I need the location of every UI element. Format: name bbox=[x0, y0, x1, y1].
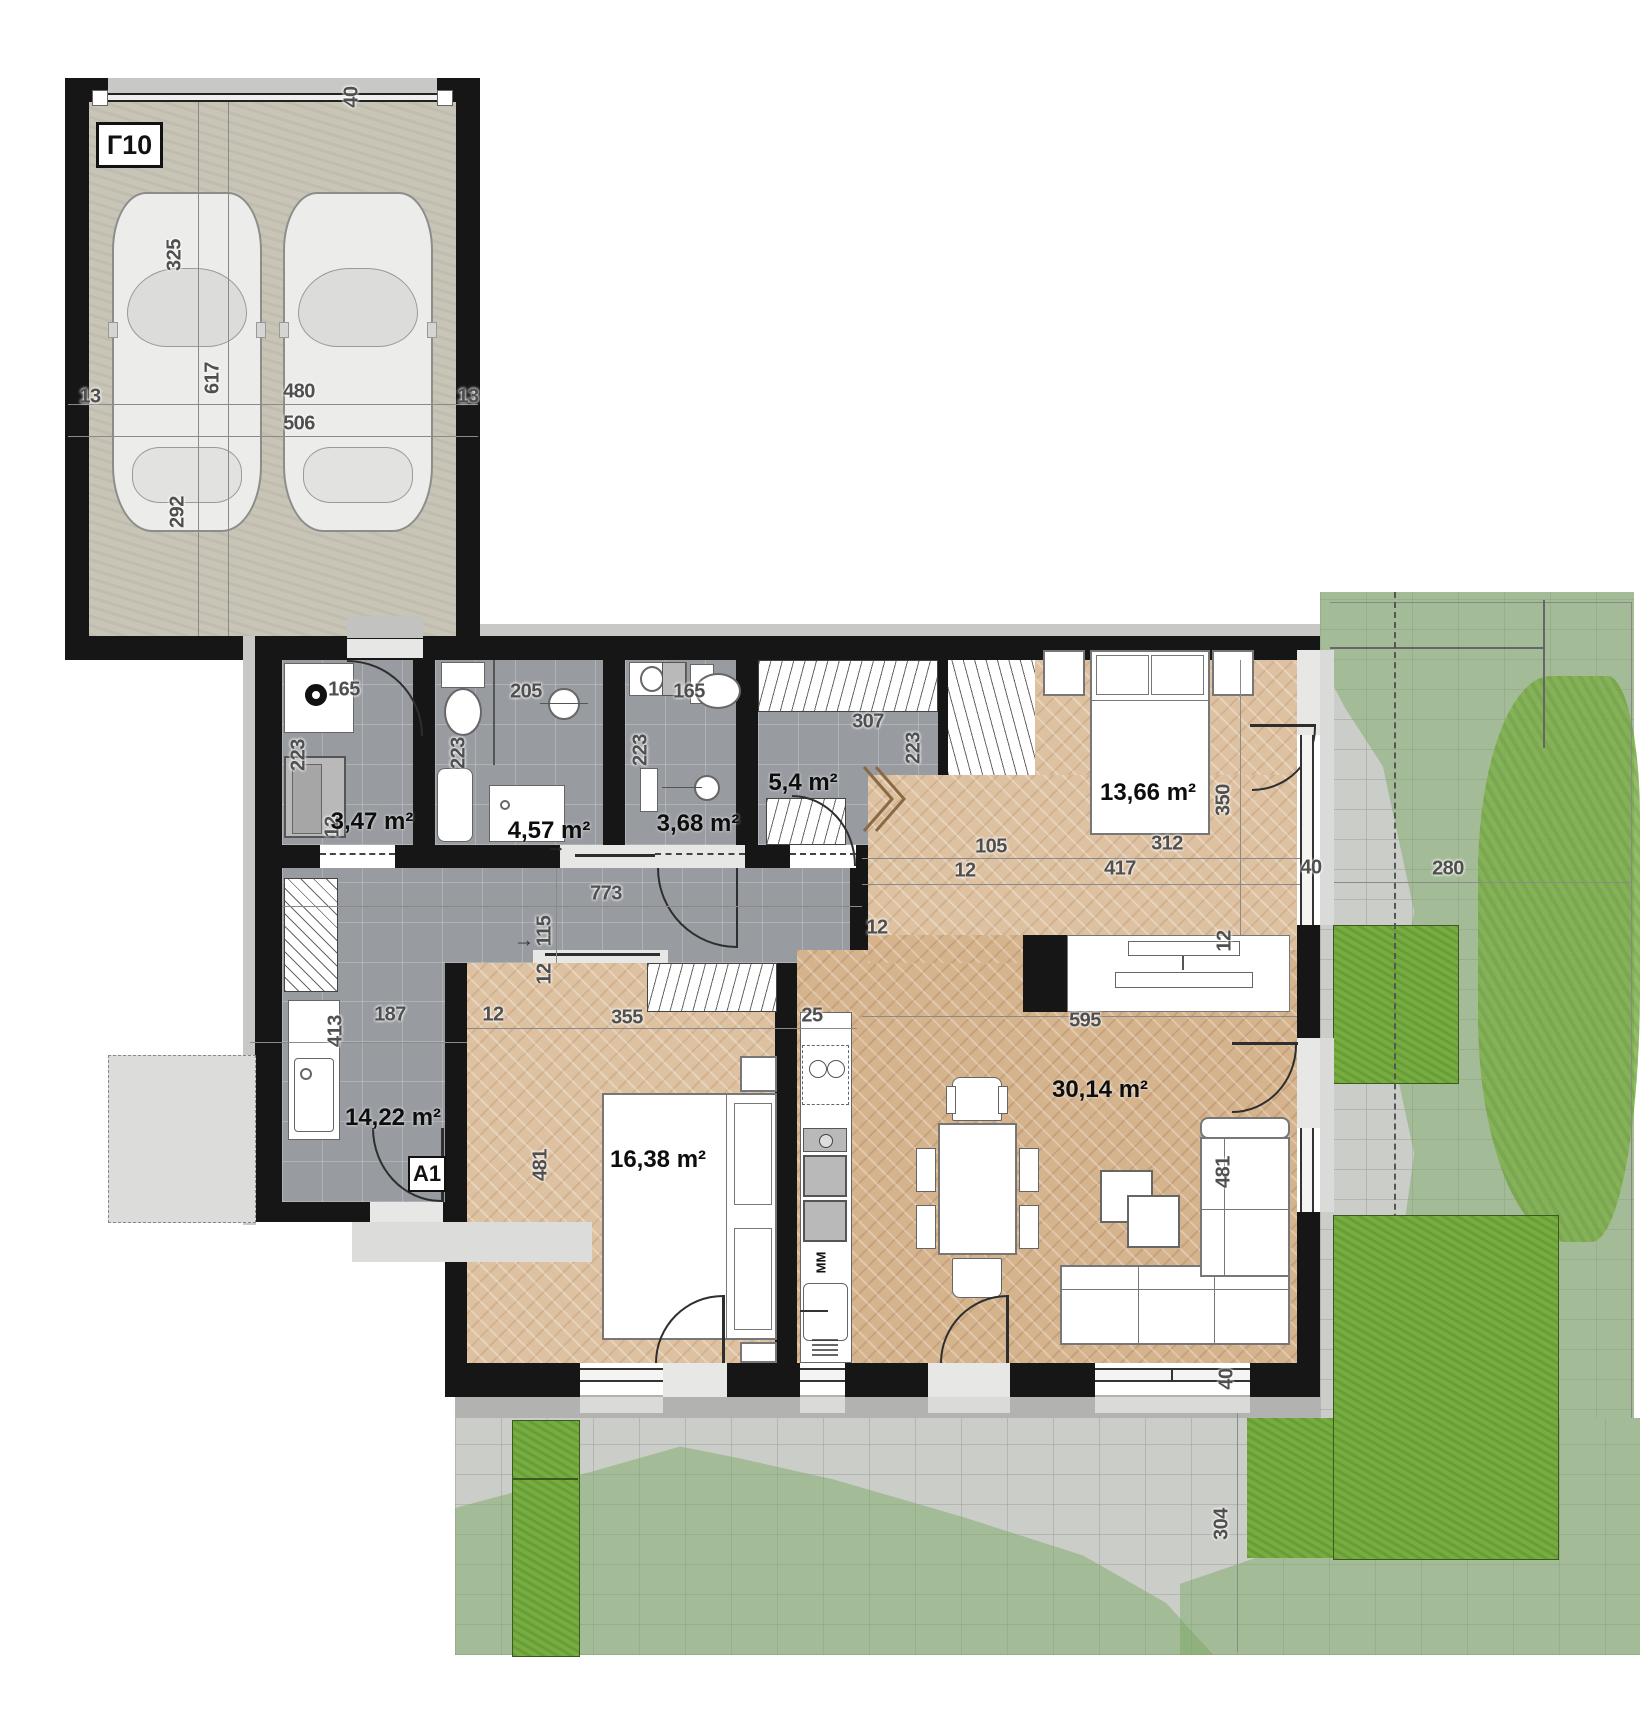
grass-patch-corner bbox=[1333, 1215, 1559, 1560]
wc-door-leaf bbox=[736, 868, 738, 948]
dimension-label: 481 bbox=[530, 1149, 553, 1181]
entrance-porch bbox=[352, 1222, 592, 1262]
bathroom-faucet bbox=[500, 800, 510, 810]
dimension-label: 12 bbox=[954, 860, 975, 883]
dimension-label: 307 bbox=[852, 711, 884, 734]
toilet-tank-bathroom bbox=[441, 662, 485, 688]
wall-bath-bottom-4 bbox=[856, 845, 868, 868]
garage-apartment-door-opening[interactable] bbox=[347, 639, 423, 658]
bedroom2-window-sill bbox=[580, 1397, 663, 1413]
pillow-2 bbox=[1151, 655, 1204, 695]
dimension-label: 25 bbox=[801, 1005, 822, 1028]
hall-sink-faucet bbox=[300, 1068, 312, 1080]
dishwasher-label: ММ bbox=[813, 1252, 828, 1274]
dimension-label: 417 bbox=[1104, 858, 1136, 881]
hallway-upper bbox=[282, 868, 850, 963]
chair-right-2 bbox=[1019, 1205, 1039, 1249]
garage-door[interactable] bbox=[108, 93, 437, 102]
room-area-label: 16,38 m² bbox=[610, 1146, 706, 1174]
kitchen-sink bbox=[803, 1283, 848, 1341]
fence-line-vertical bbox=[1543, 600, 1545, 748]
dimension-label: 165 bbox=[673, 681, 705, 704]
dimension-label: 223 bbox=[630, 734, 653, 766]
dim-line-8 bbox=[1240, 660, 1241, 935]
dimension-label: 350 bbox=[1213, 784, 1236, 816]
living-terrace-door-opening[interactable] bbox=[928, 1363, 1010, 1397]
sofa-cushion-1 bbox=[1138, 1267, 1139, 1343]
dimension-label: 325 bbox=[164, 239, 187, 271]
bedroom1-window[interactable] bbox=[1300, 735, 1314, 925]
floor-plan: Г10 bbox=[0, 0, 1640, 1732]
entrance-unit-text: A1 bbox=[413, 1161, 441, 1187]
wall-left bbox=[255, 636, 282, 1222]
chair-left-1 bbox=[916, 1148, 936, 1192]
stove-knob bbox=[819, 1134, 833, 1148]
dining-table bbox=[938, 1123, 1017, 1255]
dim-line-garden bbox=[1320, 882, 1632, 883]
dim-line-garage-3 bbox=[198, 102, 199, 636]
dimension-label: 312 bbox=[1151, 833, 1183, 856]
bedroom2-nightstand-2 bbox=[740, 1342, 777, 1363]
chair-head-arm-right bbox=[998, 1086, 1008, 1114]
dim-line-5 bbox=[467, 1028, 857, 1029]
living-window-bottom-sill bbox=[1095, 1397, 1250, 1413]
wall-bottom-1 bbox=[445, 1363, 580, 1397]
sofa-cushion-2 bbox=[1214, 1267, 1215, 1343]
car-2-mirror-left bbox=[279, 322, 289, 338]
dim-line-3 bbox=[282, 906, 862, 907]
wall-bath-bottom-3 bbox=[745, 845, 790, 868]
water-heater-icon bbox=[305, 684, 327, 706]
dimension-label: 12 bbox=[1214, 930, 1237, 951]
fridge-circle-1 bbox=[809, 1060, 827, 1078]
laundry-threshold bbox=[320, 853, 395, 855]
fence-line-horizontal bbox=[1330, 647, 1544, 649]
dimension-label: 13 bbox=[457, 386, 478, 409]
dimension-label: 280 bbox=[1432, 858, 1464, 881]
car-2-windshield bbox=[298, 268, 418, 347]
wall-bottom-4 bbox=[1010, 1363, 1095, 1397]
chair-foot bbox=[952, 1258, 1002, 1298]
wall-laundry-bath bbox=[413, 660, 435, 845]
dimension-label: 223 bbox=[288, 739, 311, 771]
dimension-label: 304 bbox=[1211, 1508, 1234, 1540]
washing-machine-door bbox=[292, 764, 322, 834]
bathroom-divider bbox=[493, 660, 495, 765]
garden-grass-patch-right bbox=[1478, 676, 1640, 1242]
coffee-table-2 bbox=[1127, 1195, 1180, 1248]
bedroom2-door-opening[interactable] bbox=[533, 950, 668, 963]
bedroom1-garden-door-opening[interactable] bbox=[1297, 650, 1320, 735]
wall-wardrobe-niche bbox=[938, 660, 948, 790]
wc-drain bbox=[694, 775, 720, 801]
hedge-divider bbox=[512, 1478, 578, 1480]
bedroom1-window-sill bbox=[1320, 650, 1334, 925]
nightstand-left bbox=[1043, 650, 1085, 696]
chair-head-arm-left bbox=[946, 1086, 956, 1114]
room-area-label: 3,68 m² bbox=[657, 810, 740, 838]
kitchen-faucet bbox=[800, 1310, 828, 1312]
car-2-rear-window bbox=[303, 447, 414, 503]
wall-right-1 bbox=[1297, 636, 1320, 650]
room-living-passage bbox=[868, 935, 1023, 963]
dimension-label: 12 bbox=[866, 917, 887, 940]
room-area-label: 13,66 m² bbox=[1100, 779, 1196, 807]
chair-left-2 bbox=[916, 1205, 936, 1249]
dimension-label: 355 bbox=[611, 1007, 643, 1030]
grass-patch-corner-ext bbox=[1247, 1418, 1333, 1558]
dim-line-7 bbox=[250, 1042, 467, 1043]
garage-unit-label: Г10 bbox=[96, 122, 163, 168]
dimension-label: 40 bbox=[1216, 1368, 1239, 1389]
tv-stand bbox=[1182, 956, 1184, 970]
pillow-1 bbox=[1096, 655, 1149, 695]
wc-threshold bbox=[655, 853, 745, 855]
room-area-label: 14,22 m² bbox=[345, 1104, 441, 1132]
living-door-pad bbox=[928, 1397, 1010, 1413]
dimension-label: 40 bbox=[341, 86, 364, 107]
dim-line-2 bbox=[862, 884, 1300, 885]
slide-arrow-icon-2: → bbox=[514, 930, 534, 953]
car-1-mirror-right bbox=[256, 322, 266, 338]
wall-bottom-3 bbox=[845, 1363, 928, 1397]
dimension-label: 165 bbox=[328, 679, 360, 702]
wardrobe-threshold bbox=[790, 853, 856, 855]
car-2-mirror-right bbox=[427, 322, 437, 338]
wall-bath-bottom-2 bbox=[395, 845, 560, 868]
wall-entrance-right bbox=[443, 1202, 467, 1222]
sofa-headrest bbox=[1200, 1117, 1290, 1139]
wardrobe-top bbox=[758, 660, 938, 712]
entrance-door-opening[interactable] bbox=[370, 1202, 443, 1222]
dish-rack-icon bbox=[810, 1336, 840, 1360]
dimension-label: 13 bbox=[79, 386, 100, 409]
fridge-circle-2 bbox=[827, 1060, 845, 1078]
fridge bbox=[802, 1045, 849, 1105]
wc-radiator bbox=[640, 768, 658, 812]
car-1-mirror-left bbox=[108, 322, 118, 338]
dim-line-304 bbox=[1237, 1400, 1238, 1652]
garage-door-lintel bbox=[108, 78, 437, 93]
dimension-label: 480 bbox=[283, 381, 315, 404]
dimension-label: 12 bbox=[534, 963, 557, 984]
bedroom2-window[interactable] bbox=[580, 1368, 663, 1382]
bed-double bbox=[1090, 650, 1210, 835]
nightstand-right bbox=[1212, 650, 1254, 696]
dim-line-garage-4 bbox=[228, 102, 229, 636]
car-1-rear-window bbox=[132, 447, 243, 503]
plot-boundary-top bbox=[1330, 602, 1632, 603]
wall-bath-bottom-1 bbox=[255, 845, 320, 868]
dimension-label: 187 bbox=[374, 1004, 406, 1027]
chair-right-1 bbox=[1019, 1148, 1039, 1192]
garage-door-jamb-right bbox=[437, 90, 453, 106]
living-garden-door-opening[interactable] bbox=[1297, 1038, 1320, 1128]
bathtub bbox=[437, 768, 473, 842]
property-dashed-line-vertical bbox=[1394, 592, 1396, 1290]
hall-shaft bbox=[284, 878, 338, 992]
car-2 bbox=[283, 192, 433, 532]
car-1 bbox=[112, 192, 262, 532]
dimension-label: 223 bbox=[448, 737, 471, 769]
chair-head bbox=[952, 1077, 1002, 1121]
wall-entrance-left bbox=[255, 1202, 370, 1222]
tv-console bbox=[1115, 972, 1253, 988]
dim-line-garage-1 bbox=[68, 404, 478, 405]
wall-right-2 bbox=[1297, 925, 1320, 1038]
dimension-label: 506 bbox=[283, 413, 315, 436]
dimension-label: 12 bbox=[482, 1004, 503, 1027]
bedroom2-terrace-door-opening[interactable] bbox=[663, 1363, 727, 1397]
entrance-unit-label: A1 bbox=[408, 1156, 446, 1192]
bedroom1-closet-niche bbox=[948, 660, 1035, 775]
stove-small bbox=[803, 1128, 847, 1152]
garage-apartment-door-slab bbox=[347, 616, 423, 638]
sofa-seat-line bbox=[1062, 1289, 1288, 1290]
wall-bedroom2-left bbox=[445, 950, 467, 1397]
living-window-right-sill bbox=[1320, 1038, 1334, 1212]
sofa-cushion-3 bbox=[1202, 1209, 1288, 1210]
double-door-icon bbox=[860, 763, 906, 835]
hedge-strip-left bbox=[512, 1420, 580, 1657]
garage-door-jamb-left bbox=[92, 90, 108, 106]
dimension-label: 617 bbox=[202, 362, 225, 394]
toilet-bowl-bathroom bbox=[444, 688, 482, 736]
dimension-label: 481 bbox=[1213, 1156, 1236, 1188]
living-window-mullion bbox=[1171, 1368, 1173, 1382]
dimension-label: 595 bbox=[1069, 1010, 1101, 1033]
kitchen-window-sill bbox=[800, 1397, 845, 1413]
wc-drain-arm bbox=[662, 787, 702, 788]
dimension-label: 223 bbox=[903, 732, 926, 764]
wc-sink-bowl bbox=[640, 666, 664, 692]
dishwasher-text: ММ bbox=[813, 1252, 828, 1274]
hedge-square-right bbox=[1333, 925, 1459, 1084]
bedroom2-sliding-door[interactable] bbox=[545, 953, 660, 956]
room-area-label: 3,47 m² bbox=[331, 808, 414, 836]
room-area-label: 4,57 m² bbox=[508, 817, 591, 845]
dim-line-1 bbox=[862, 858, 1300, 859]
shower-arm bbox=[540, 703, 588, 704]
dimension-label: 292 bbox=[167, 496, 190, 528]
bedroom2-wardrobe bbox=[647, 963, 777, 1012]
wall-bottom-5 bbox=[1250, 1363, 1320, 1397]
bedroom2-pillow-2 bbox=[734, 1228, 772, 1330]
bedroom2-nightstand-1 bbox=[740, 1056, 777, 1092]
room-area-label: 5,4 m² bbox=[768, 769, 837, 797]
bedroom2-blanket-line bbox=[726, 1095, 727, 1338]
dimension-label: 40 bbox=[1300, 857, 1321, 880]
wc-door-opening[interactable] bbox=[655, 845, 745, 868]
bedroom2-pillow-1 bbox=[734, 1103, 772, 1205]
blanket-line bbox=[1092, 700, 1208, 701]
room-area-label: 30,14 m² bbox=[1052, 1076, 1148, 1104]
wall-pier bbox=[1023, 935, 1067, 1012]
shower-drain bbox=[548, 688, 580, 720]
wall-bottom-2 bbox=[727, 1363, 800, 1397]
wall-bath-wc bbox=[603, 660, 625, 845]
garage-unit-text: Г10 bbox=[107, 130, 152, 161]
porch-left bbox=[108, 1055, 256, 1223]
hall-sink bbox=[294, 1058, 334, 1132]
dimension-label: 205 bbox=[510, 681, 542, 704]
dimension-label: 413 bbox=[325, 1015, 348, 1047]
plot-boundary-right bbox=[1631, 602, 1632, 1558]
cooktop-2 bbox=[803, 1200, 847, 1242]
cooktop-1 bbox=[803, 1155, 847, 1197]
sofa-horizontal bbox=[1060, 1265, 1290, 1345]
dim-line-garage-2 bbox=[68, 436, 478, 437]
dimension-label: 773 bbox=[590, 883, 622, 906]
dimension-label: 115 bbox=[534, 916, 557, 947]
living-window-right[interactable] bbox=[1300, 1128, 1314, 1212]
dimension-label: 105 bbox=[975, 836, 1007, 859]
kitchen-window[interactable] bbox=[800, 1368, 845, 1382]
